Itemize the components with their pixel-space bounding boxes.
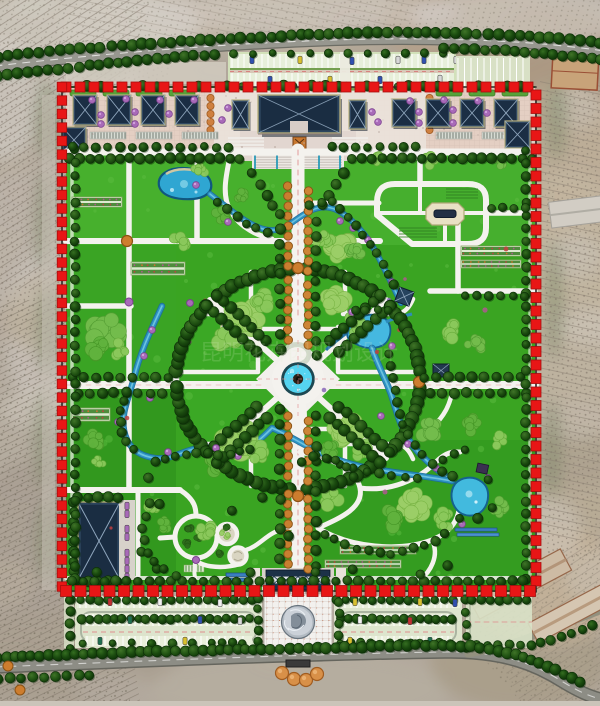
svg-text:昆明花卉园规划设计: 昆明花卉园规划设计 — [200, 340, 398, 365]
